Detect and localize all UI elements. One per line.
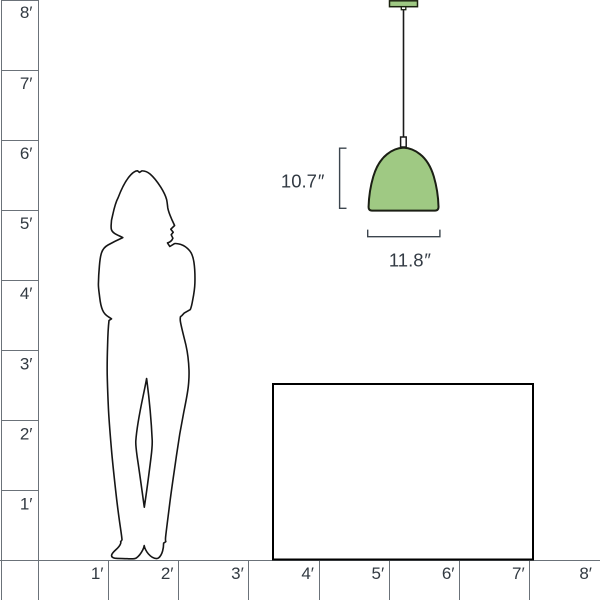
- svg-text:1′: 1′: [91, 564, 104, 583]
- svg-text:11.8″: 11.8″: [389, 249, 432, 270]
- svg-text:10.7″: 10.7″: [281, 170, 325, 191]
- svg-text:4′: 4′: [20, 284, 33, 303]
- svg-text:2′: 2′: [161, 564, 174, 583]
- svg-text:7′: 7′: [20, 74, 33, 93]
- svg-text:3′: 3′: [20, 354, 33, 373]
- svg-text:3′: 3′: [231, 564, 244, 583]
- svg-text:8′: 8′: [20, 3, 33, 22]
- svg-text:5′: 5′: [372, 564, 385, 583]
- svg-text:8′: 8′: [579, 564, 592, 583]
- svg-text:6′: 6′: [442, 564, 455, 583]
- svg-text:7′: 7′: [512, 564, 525, 583]
- svg-text:6′: 6′: [20, 144, 33, 163]
- svg-text:4′: 4′: [301, 564, 314, 583]
- svg-text:5′: 5′: [20, 214, 33, 233]
- svg-text:1′: 1′: [20, 495, 33, 514]
- svg-text:2′: 2′: [20, 424, 33, 443]
